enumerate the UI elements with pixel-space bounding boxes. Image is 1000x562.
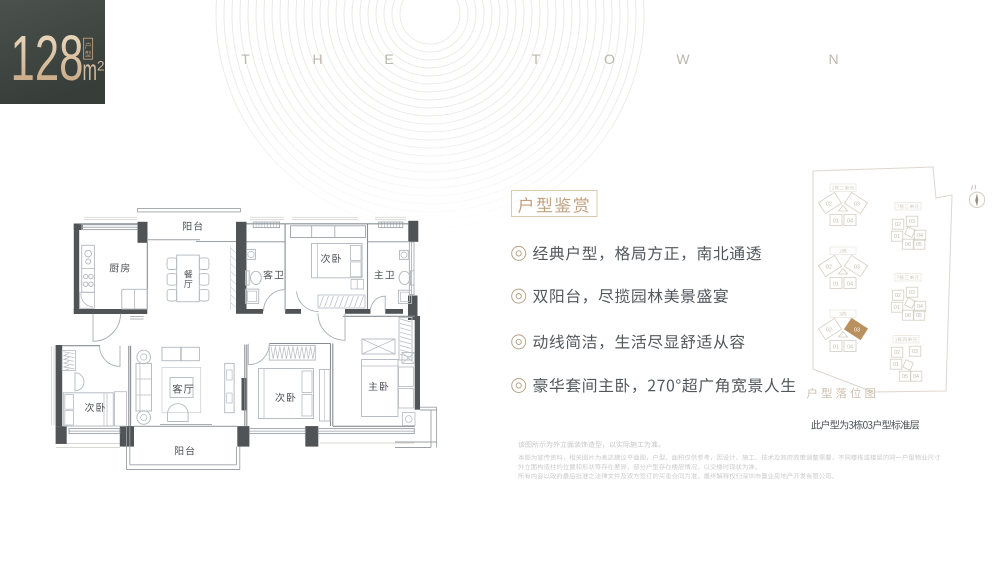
svg-text:05: 05 [902, 374, 908, 380]
svg-text:E: E [384, 51, 393, 67]
svg-text:01: 01 [894, 234, 900, 240]
svg-text:02: 02 [895, 222, 901, 228]
svg-text:2: 2 [97, 59, 105, 74]
svg-text:O: O [604, 51, 615, 67]
svg-text:03: 03 [854, 328, 860, 334]
svg-text:04: 04 [917, 304, 923, 310]
svg-text:T: T [241, 51, 250, 67]
svg-text:01: 01 [833, 282, 839, 288]
svg-text:04: 04 [847, 219, 853, 225]
svg-text:06: 06 [905, 313, 911, 319]
svg-text:03: 03 [912, 349, 918, 355]
svg-text:04: 04 [847, 345, 853, 351]
svg-text:N: N [828, 51, 838, 67]
svg-text:01: 01 [893, 362, 899, 368]
svg-text:04: 04 [847, 282, 853, 288]
svg-text:01: 01 [894, 305, 900, 311]
svg-text:04: 04 [913, 374, 919, 380]
svg-text:01: 01 [833, 219, 839, 225]
svg-text:03: 03 [854, 202, 860, 208]
svg-text:05: 05 [916, 242, 922, 248]
svg-text:W: W [676, 51, 690, 67]
svg-text:H: H [313, 51, 323, 67]
svg-text:06: 06 [905, 242, 911, 248]
svg-text:01: 01 [833, 345, 839, 351]
svg-text:03: 03 [909, 290, 915, 296]
svg-text:05: 05 [916, 313, 922, 319]
svg-text:03: 03 [854, 265, 860, 271]
svg-text:02: 02 [895, 293, 901, 299]
svg-text:02: 02 [894, 350, 900, 356]
svg-text:02: 02 [826, 328, 832, 334]
svg-text:04: 04 [917, 233, 923, 239]
svg-text:T: T [532, 51, 541, 67]
svg-text:02: 02 [826, 265, 832, 271]
svg-text:03: 03 [909, 219, 915, 225]
svg-text:128: 128 [11, 22, 84, 94]
svg-text:02: 02 [826, 202, 832, 208]
